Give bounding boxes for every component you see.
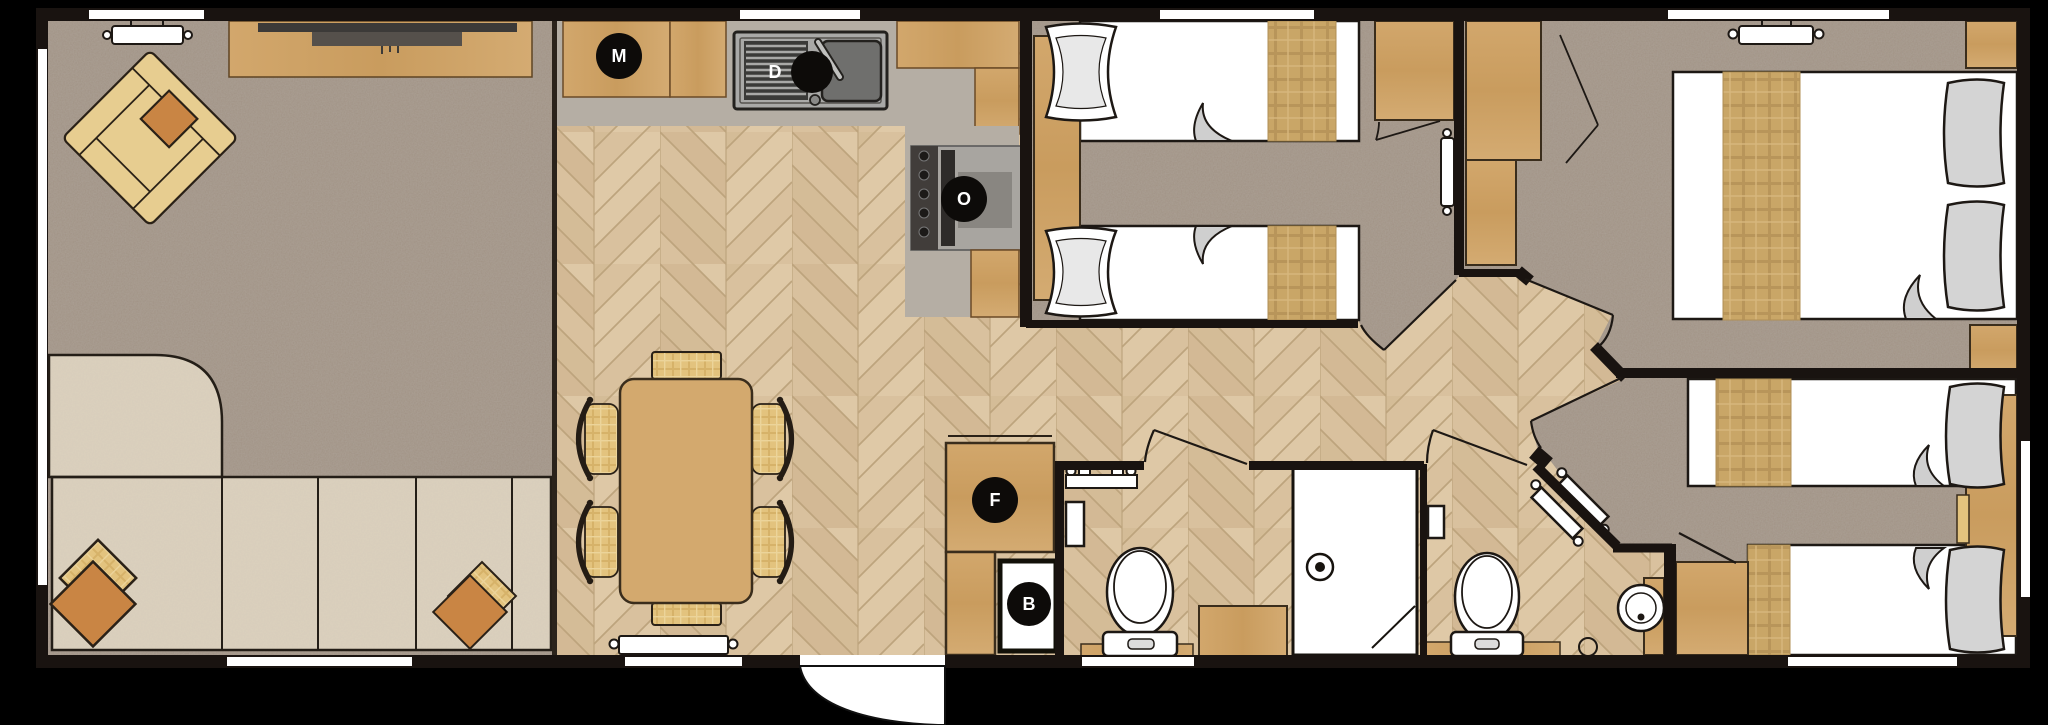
svg-text:B: B <box>1023 594 1036 614</box>
svg-text:D: D <box>769 62 782 82</box>
svg-text:F: F <box>990 490 1001 510</box>
svg-text:O: O <box>957 189 971 209</box>
svg-text:M: M <box>612 46 627 66</box>
